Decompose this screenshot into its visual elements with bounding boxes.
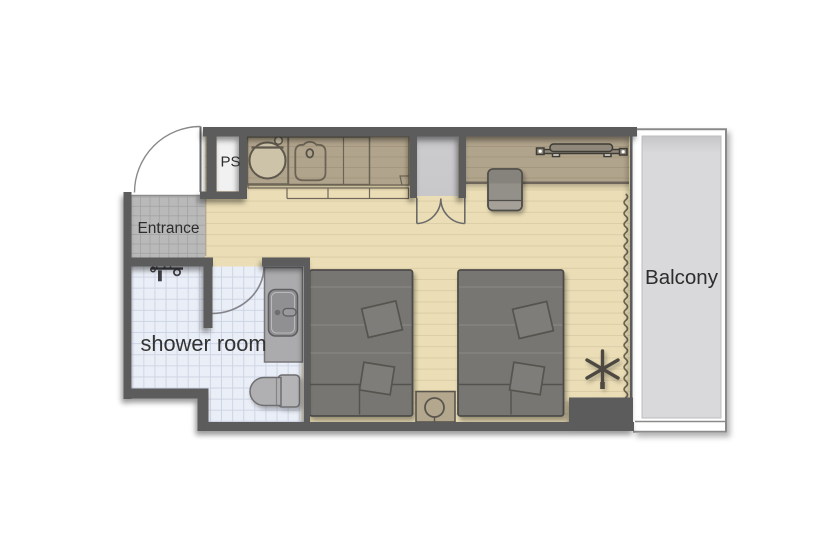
svg-text:shower room: shower room bbox=[141, 331, 267, 356]
svg-text:Balcony: Balcony bbox=[645, 266, 719, 289]
svg-text:PS: PS bbox=[220, 154, 240, 171]
svg-text:Entrance: Entrance bbox=[137, 220, 199, 237]
